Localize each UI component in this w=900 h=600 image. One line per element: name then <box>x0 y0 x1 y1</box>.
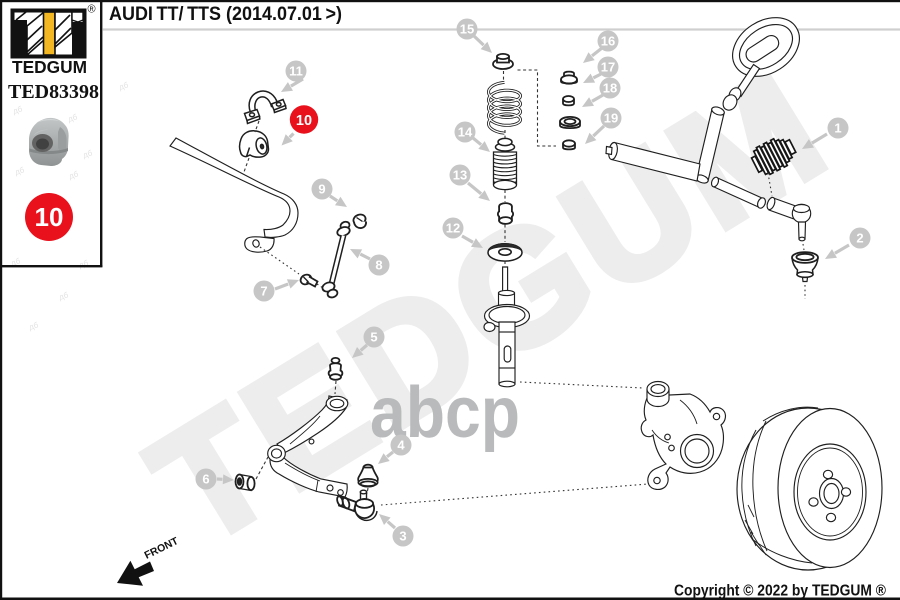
svg-text:1: 1 <box>834 121 841 136</box>
svg-text:10: 10 <box>296 113 312 129</box>
svg-text:дб: дб <box>12 104 24 116</box>
svg-text:TED83398: TED83398 <box>8 81 99 103</box>
svg-text:дб: дб <box>118 80 130 92</box>
svg-text:дб: дб <box>67 112 79 124</box>
svg-text:15: 15 <box>460 22 474 37</box>
svg-text:10: 10 <box>35 202 64 232</box>
svg-text:18: 18 <box>603 81 617 96</box>
svg-text:17: 17 <box>601 60 615 75</box>
svg-text:12: 12 <box>446 221 460 236</box>
svg-text:16: 16 <box>601 34 615 49</box>
svg-text:7: 7 <box>260 284 267 299</box>
svg-text:дб: дб <box>28 320 40 332</box>
svg-text:дб: дб <box>14 165 26 177</box>
svg-text:дб: дб <box>68 169 80 181</box>
svg-text:®: ® <box>88 4 96 16</box>
svg-text:дб: дб <box>78 258 90 270</box>
svg-text:19: 19 <box>604 111 618 126</box>
svg-text:8: 8 <box>375 258 382 273</box>
svg-text:дб: дб <box>58 290 70 302</box>
svg-text:TEDGUM: TEDGUM <box>12 57 87 77</box>
svg-text:6: 6 <box>202 472 209 487</box>
svg-text:5: 5 <box>370 330 377 345</box>
svg-text:FRONT: FRONT <box>143 535 181 562</box>
svg-text:4: 4 <box>397 438 405 453</box>
svg-text:3: 3 <box>399 529 406 544</box>
svg-text:2: 2 <box>856 231 863 246</box>
svg-text:11: 11 <box>289 64 303 79</box>
svg-text:13: 13 <box>453 168 467 183</box>
svg-text:Copyright © 2022 by TEDGUM ®: Copyright © 2022 by TEDGUM ® <box>674 583 886 600</box>
svg-text:AUDI TT/ TTS (2014.07.01 >): AUDI TT/ TTS (2014.07.01 >) <box>109 4 342 25</box>
svg-text:9: 9 <box>318 182 325 197</box>
svg-text:14: 14 <box>458 125 473 140</box>
svg-text:дб: дб <box>82 148 94 160</box>
